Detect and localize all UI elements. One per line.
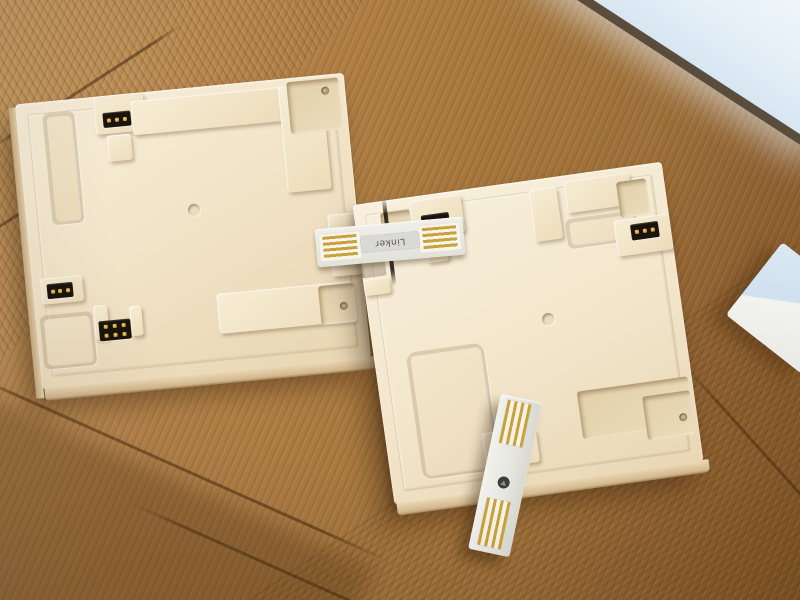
linker-contact-right: [418, 222, 462, 254]
contact-connector-6pin: [98, 318, 132, 341]
corner-channel: [39, 311, 97, 370]
corner-recess: [616, 178, 651, 218]
linker-logo: [497, 475, 511, 489]
photo-stage: Linker: [0, 0, 800, 600]
gold-contact-stripes: [322, 234, 358, 259]
corner-recess: [318, 283, 358, 325]
linker-label: Linker: [360, 232, 419, 253]
linker-contact-bottom: [477, 497, 510, 549]
linker-contact-left: [318, 231, 362, 263]
corner-recess: [642, 390, 696, 440]
contact-connector: [46, 282, 73, 299]
linker-contact-top: [499, 400, 532, 448]
gold-contact-stripes: [422, 225, 458, 250]
molded-tab: [106, 134, 132, 162]
corner-recess: [286, 77, 343, 134]
contact-connector: [102, 110, 131, 128]
